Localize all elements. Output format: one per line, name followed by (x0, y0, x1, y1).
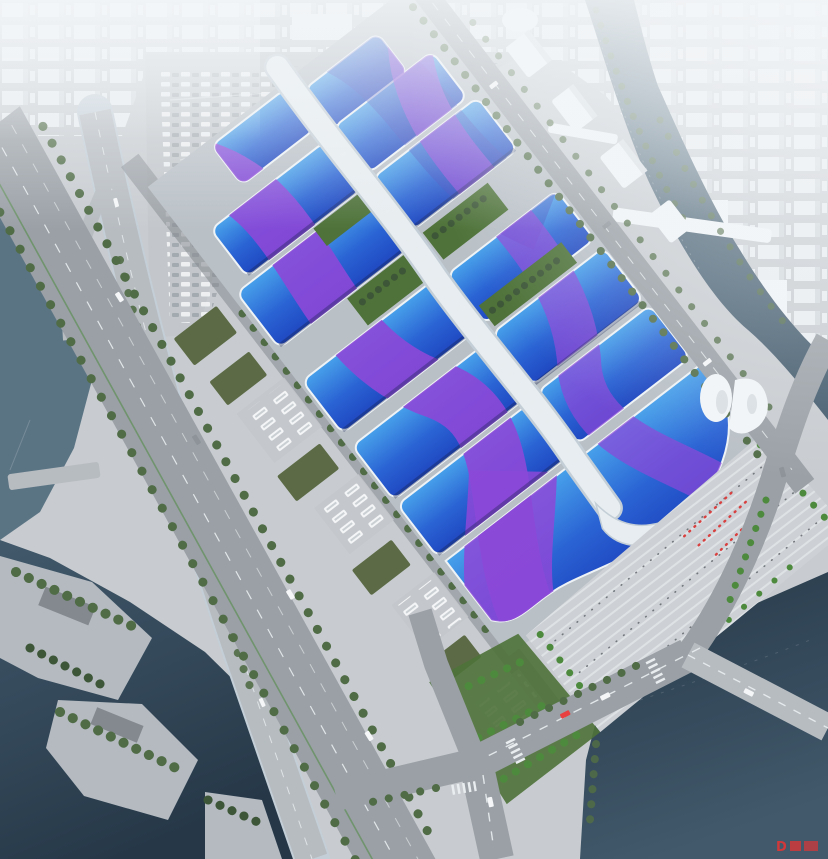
watermark-glyph-block (790, 841, 801, 851)
aerial-rendering-canvas: D (0, 0, 828, 859)
watermark-glyph-block (804, 841, 818, 851)
watermark-letter: D (776, 840, 787, 855)
aerial-rendering: D (0, 0, 828, 859)
